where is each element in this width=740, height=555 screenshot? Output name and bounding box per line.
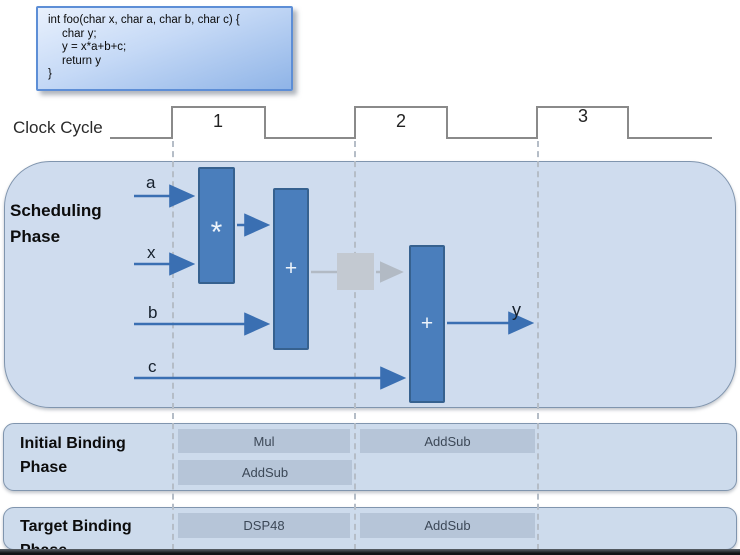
cycle-number-2: 2 — [392, 111, 410, 132]
initial-binding-title: Initial Binding Phase — [20, 432, 126, 480]
cycle-boundary-line-3 — [537, 141, 539, 550]
binding-box-addsub-cycle1: AddSub — [178, 460, 352, 485]
binding-box-mul: Mul — [178, 429, 350, 453]
input-label-x: x — [147, 243, 156, 263]
code-line: } — [48, 68, 285, 82]
adder1-block: + — [273, 188, 309, 350]
code-line: return y — [62, 55, 285, 69]
cycle-boundary-line-2 — [354, 141, 356, 550]
scheduling-title-line2: Phase — [10, 224, 102, 250]
cycle-number-1: 1 — [209, 111, 227, 132]
plus-symbol: + — [285, 257, 297, 281]
plus-symbol: + — [421, 312, 433, 336]
output-label-y: y — [512, 300, 521, 321]
code-line: y = x*a+b+c; — [62, 41, 285, 55]
code-line: int foo(char x, char a, char b, char c) … — [48, 14, 285, 28]
initial-binding-title-line1: Initial Binding — [20, 432, 126, 456]
input-label-b: b — [148, 303, 157, 323]
binding-box-addsub-target: AddSub — [360, 513, 535, 538]
slide-canvas: int foo(char x, char a, char b, char c) … — [0, 0, 740, 555]
input-label-a: a — [146, 173, 155, 193]
scheduling-phase-title: Scheduling Phase — [10, 198, 102, 250]
scheduling-title-line1: Scheduling — [10, 198, 102, 224]
code-snippet-box: int foo(char x, char a, char b, char c) … — [36, 6, 293, 91]
multiplier-block: * — [198, 167, 235, 284]
initial-binding-title-line2: Phase — [20, 456, 126, 480]
register-square — [337, 253, 374, 290]
binding-box-addsub-cycle2: AddSub — [360, 429, 535, 453]
multiply-symbol: * — [211, 216, 223, 250]
cycle-boundary-line-1 — [172, 141, 174, 550]
target-binding-title-line1: Target Binding — [20, 515, 132, 539]
clock-cycle-label: Clock Cycle — [13, 118, 103, 138]
adder2-block: + — [409, 245, 445, 403]
slide-bottom-edge — [0, 549, 740, 555]
code-line: char y; — [62, 28, 285, 42]
cycle-number-3: 3 — [574, 106, 592, 127]
input-label-c: c — [148, 357, 157, 377]
binding-box-dsp48: DSP48 — [178, 513, 350, 538]
